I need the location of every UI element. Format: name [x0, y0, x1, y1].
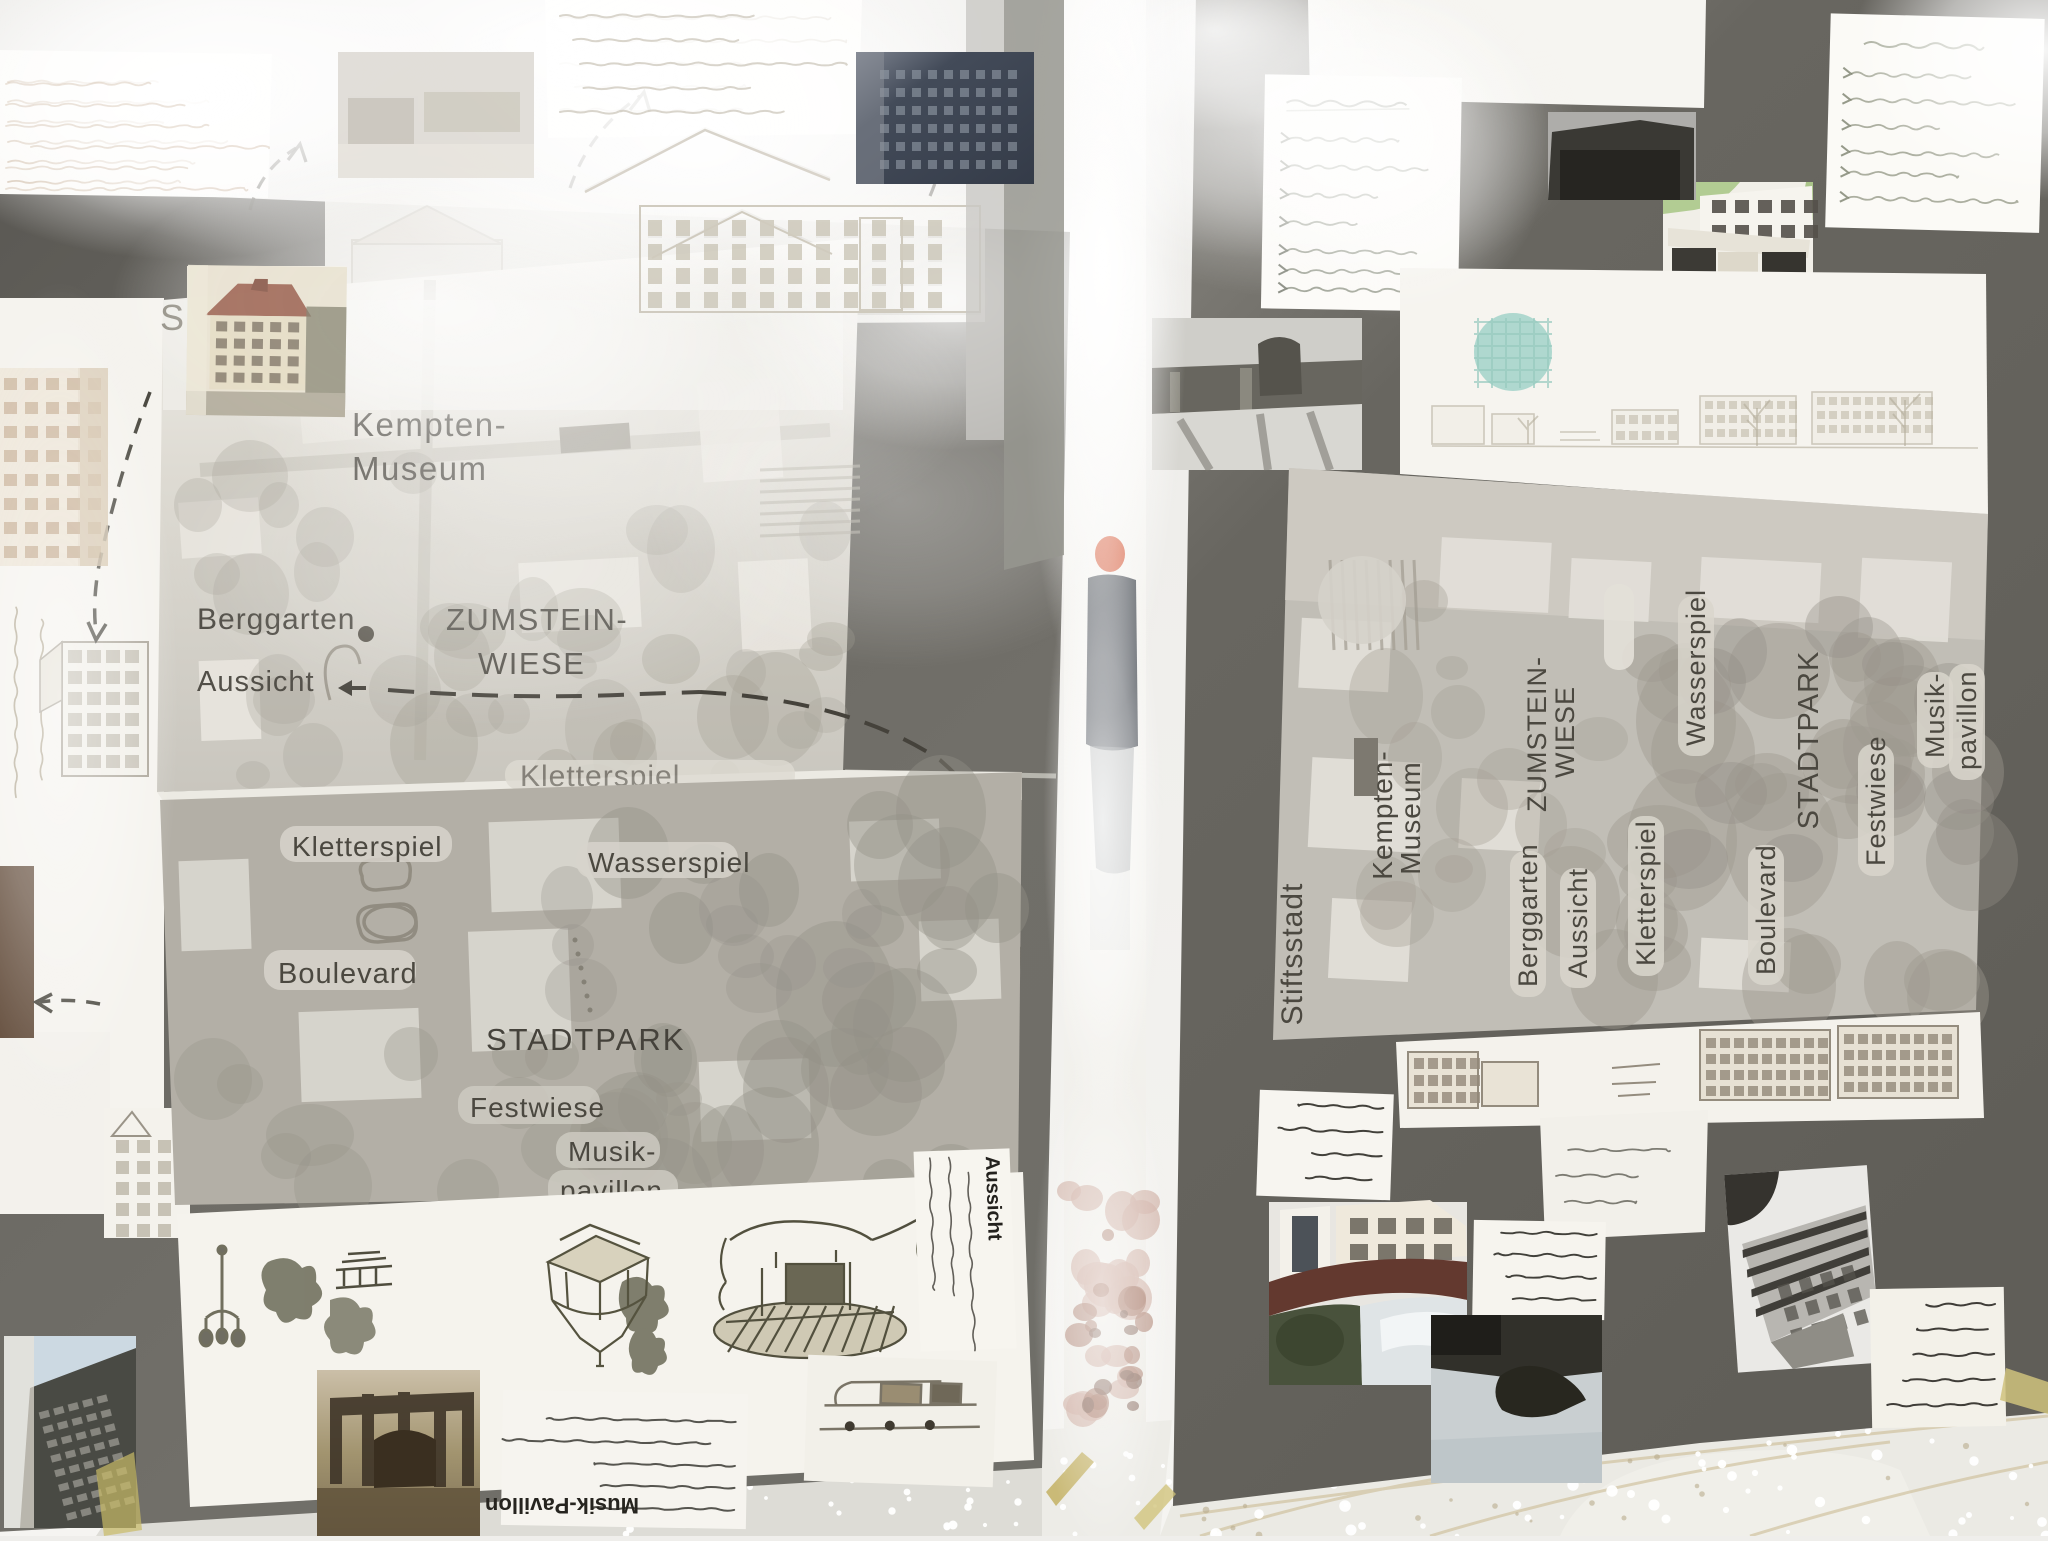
svg-text:Musik-: Musik-: [568, 1136, 656, 1167]
svg-text:Museum: Museum: [1395, 761, 1426, 874]
svg-text:ZUMSTEIN-: ZUMSTEIN-: [1522, 656, 1552, 812]
svg-text:Kletterspiel: Kletterspiel: [292, 831, 443, 862]
svg-text:Wasserspiel: Wasserspiel: [1681, 589, 1711, 746]
svg-text:Berggarten: Berggarten: [1513, 843, 1543, 987]
svg-text:Wasserspiel: Wasserspiel: [588, 847, 750, 878]
svg-text:Boulevard: Boulevard: [278, 958, 418, 990]
svg-text:Kletterspiel: Kletterspiel: [1631, 820, 1661, 966]
svg-text:Boulevard: Boulevard: [1751, 844, 1781, 975]
svg-text:Aussicht: Aussicht: [1563, 868, 1593, 978]
svg-text:Festwiese: Festwiese: [470, 1092, 605, 1123]
svg-text:Stiftsstadt: Stiftsstadt: [1276, 883, 1309, 1026]
svg-text:Aussicht: Aussicht: [981, 1156, 1006, 1242]
svg-text:STADTPARK: STADTPARK: [1793, 651, 1825, 830]
svg-text:Kempten-: Kempten-: [1367, 750, 1398, 879]
svg-text:Festwiese: Festwiese: [1861, 735, 1891, 866]
svg-text:Musik-Pavillon: Musik-Pavillon: [485, 1493, 639, 1518]
svg-text:WIESE: WIESE: [1550, 686, 1580, 778]
svg-text:Musik-: Musik-: [1920, 673, 1950, 759]
svg-text:STADTPARK: STADTPARK: [486, 1022, 685, 1057]
svg-text:pavillon: pavillon: [1952, 670, 1982, 770]
